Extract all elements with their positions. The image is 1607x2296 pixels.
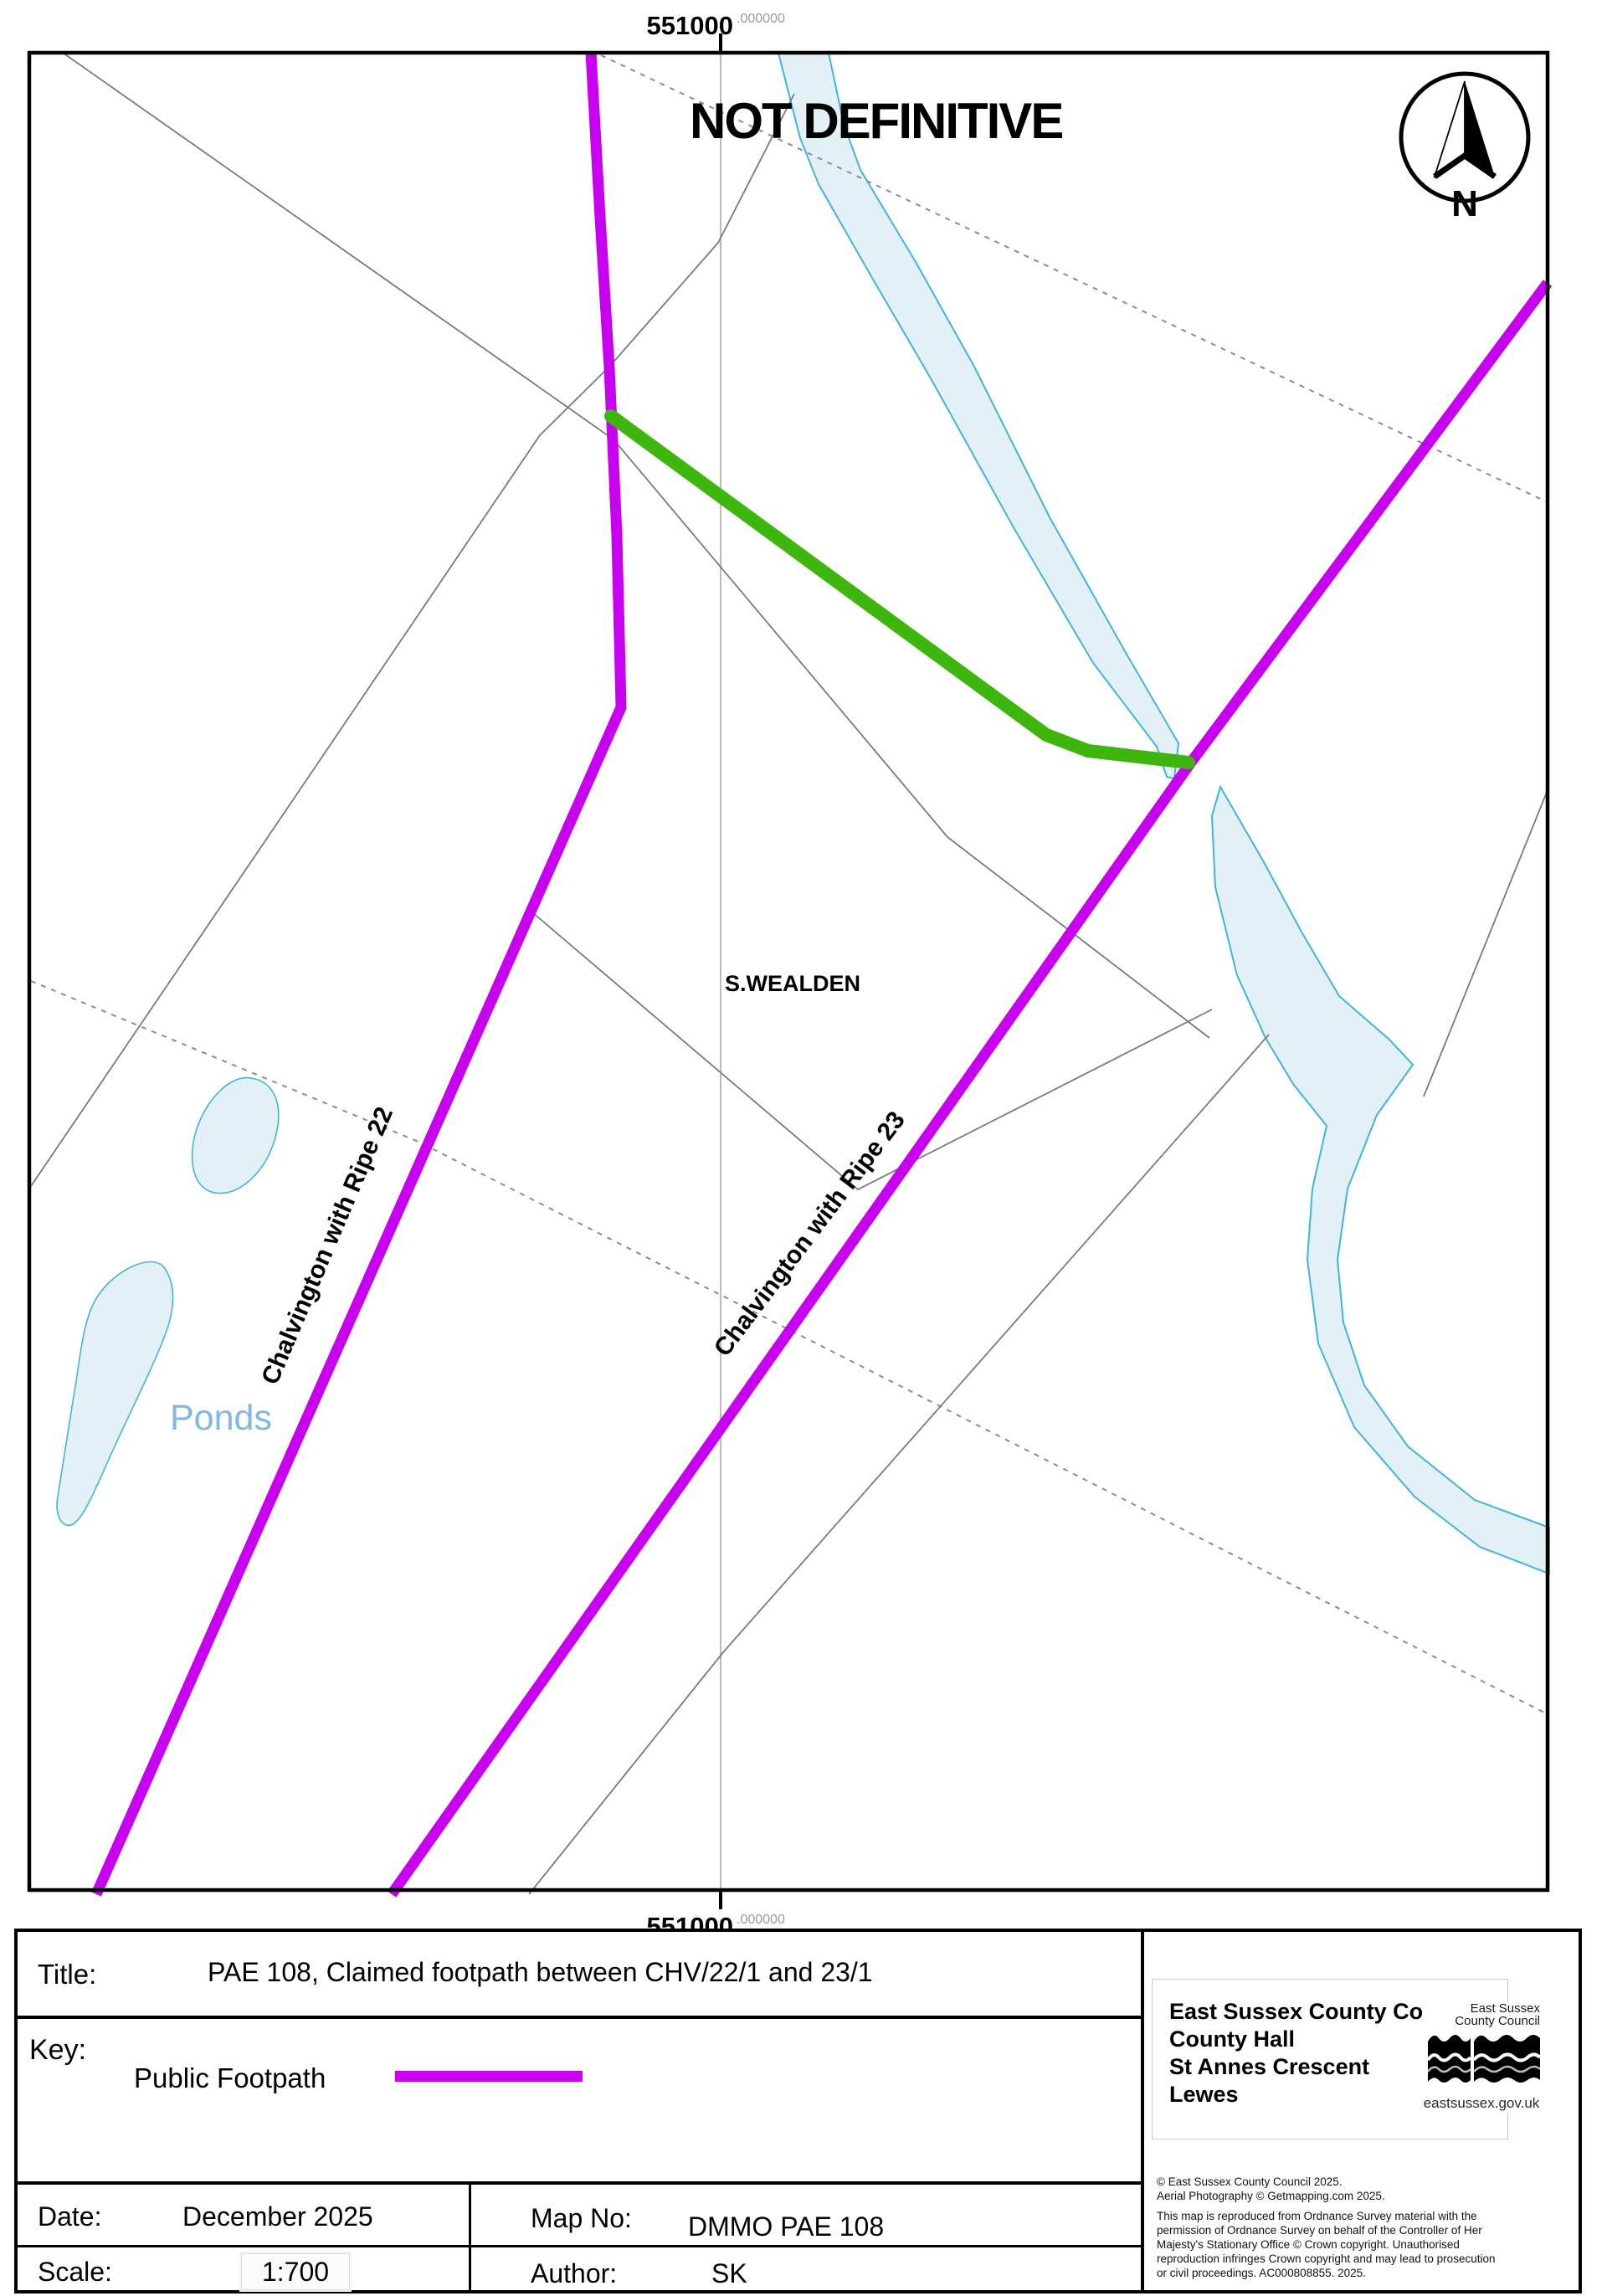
- field-boundary-4: [1424, 790, 1548, 1097]
- top-coordinate-label: 551000: [647, 11, 733, 40]
- copyright-line: This map is reproduced from Ordnance Sur…: [1157, 2209, 1572, 2223]
- title-label: Title:: [38, 1959, 96, 1990]
- compass-n-label: N: [1451, 183, 1478, 224]
- date-value: December 2025: [182, 2201, 373, 2232]
- author-label: Author:: [531, 2258, 617, 2289]
- public-footpath-swatch: [395, 2071, 583, 2082]
- scale-value-field[interactable]: 1:700: [241, 2253, 350, 2290]
- bottom-coordinate-tick: [719, 1889, 722, 1909]
- field-boundary-2: [31, 94, 794, 1186]
- copyright-line: reproduction infringes Crown copyright a…: [1157, 2252, 1572, 2266]
- key-label: Key:: [29, 2034, 86, 2067]
- date-row-divider: [14, 2245, 1141, 2247]
- field-boundary-5: [529, 1035, 1269, 1894]
- key-item-label: Public Footpath: [134, 2062, 326, 2094]
- north-compass: N: [1401, 74, 1528, 224]
- author-value: SK: [711, 2258, 747, 2289]
- copyright-line: Aerial Photography © Getmapping.com 2025…: [1157, 2189, 1572, 2203]
- key-row-divider: [14, 2181, 1141, 2185]
- pond-small: [193, 1078, 279, 1194]
- copyright-block: © East Sussex County Council 2025. Aeria…: [1157, 2175, 1572, 2280]
- council-logo-text: East Sussex: [1423, 2002, 1540, 2015]
- ponds-label: Ponds: [170, 1398, 272, 1438]
- river-water: [1212, 787, 1549, 1574]
- council-url: eastsussex.gov.uk: [1423, 2095, 1540, 2112]
- top-coordinate-decimal: .000000: [737, 12, 785, 26]
- dmmo-map-page: { "colors": { "magenta": "#c900f0", "gre…: [0, 0, 1607, 2296]
- map-title-text: PAE 108, Claimed footpath between CHV/22…: [208, 1957, 873, 1988]
- map-no-label: Map No:: [531, 2203, 632, 2234]
- copyright-line: permission of Ordnance Survey on behalf …: [1157, 2223, 1572, 2237]
- pond-large: [57, 1262, 172, 1526]
- date-label: Date:: [38, 2201, 101, 2232]
- copyright-line: © East Sussex County Council 2025.: [1157, 2175, 1572, 2189]
- bottom-coordinate-decimal: .000000: [737, 1913, 785, 1927]
- council-logo: East Sussex County Council eastsussex.go…: [1423, 2002, 1540, 2112]
- title-row-divider: [14, 2016, 1141, 2019]
- not-definitive-watermark: NOT DEFINITIVE: [690, 93, 1062, 149]
- district-label: S.WEALDEN: [725, 971, 860, 996]
- footer-column-divider: [469, 2184, 471, 2293]
- footer-panel-divider: [1141, 1929, 1144, 2293]
- path23-label: Chalvington with Ripe 23: [709, 1107, 911, 1362]
- copyright-line: or civil proceedings. AC000808855. 2025.: [1157, 2266, 1572, 2280]
- claimed-footpath-line: [611, 416, 1189, 763]
- council-waves-icon: [1428, 2030, 1540, 2087]
- map-no-value: DMMO PAE 108: [688, 2211, 884, 2242]
- copyright-line: Majesty's Stationary Office © Crown copy…: [1157, 2237, 1572, 2252]
- stream-water: [778, 53, 1178, 778]
- council-logo-text: County Council: [1423, 2015, 1540, 2027]
- scale-label: Scale:: [38, 2257, 112, 2288]
- copyright-gap: [1157, 2203, 1572, 2209]
